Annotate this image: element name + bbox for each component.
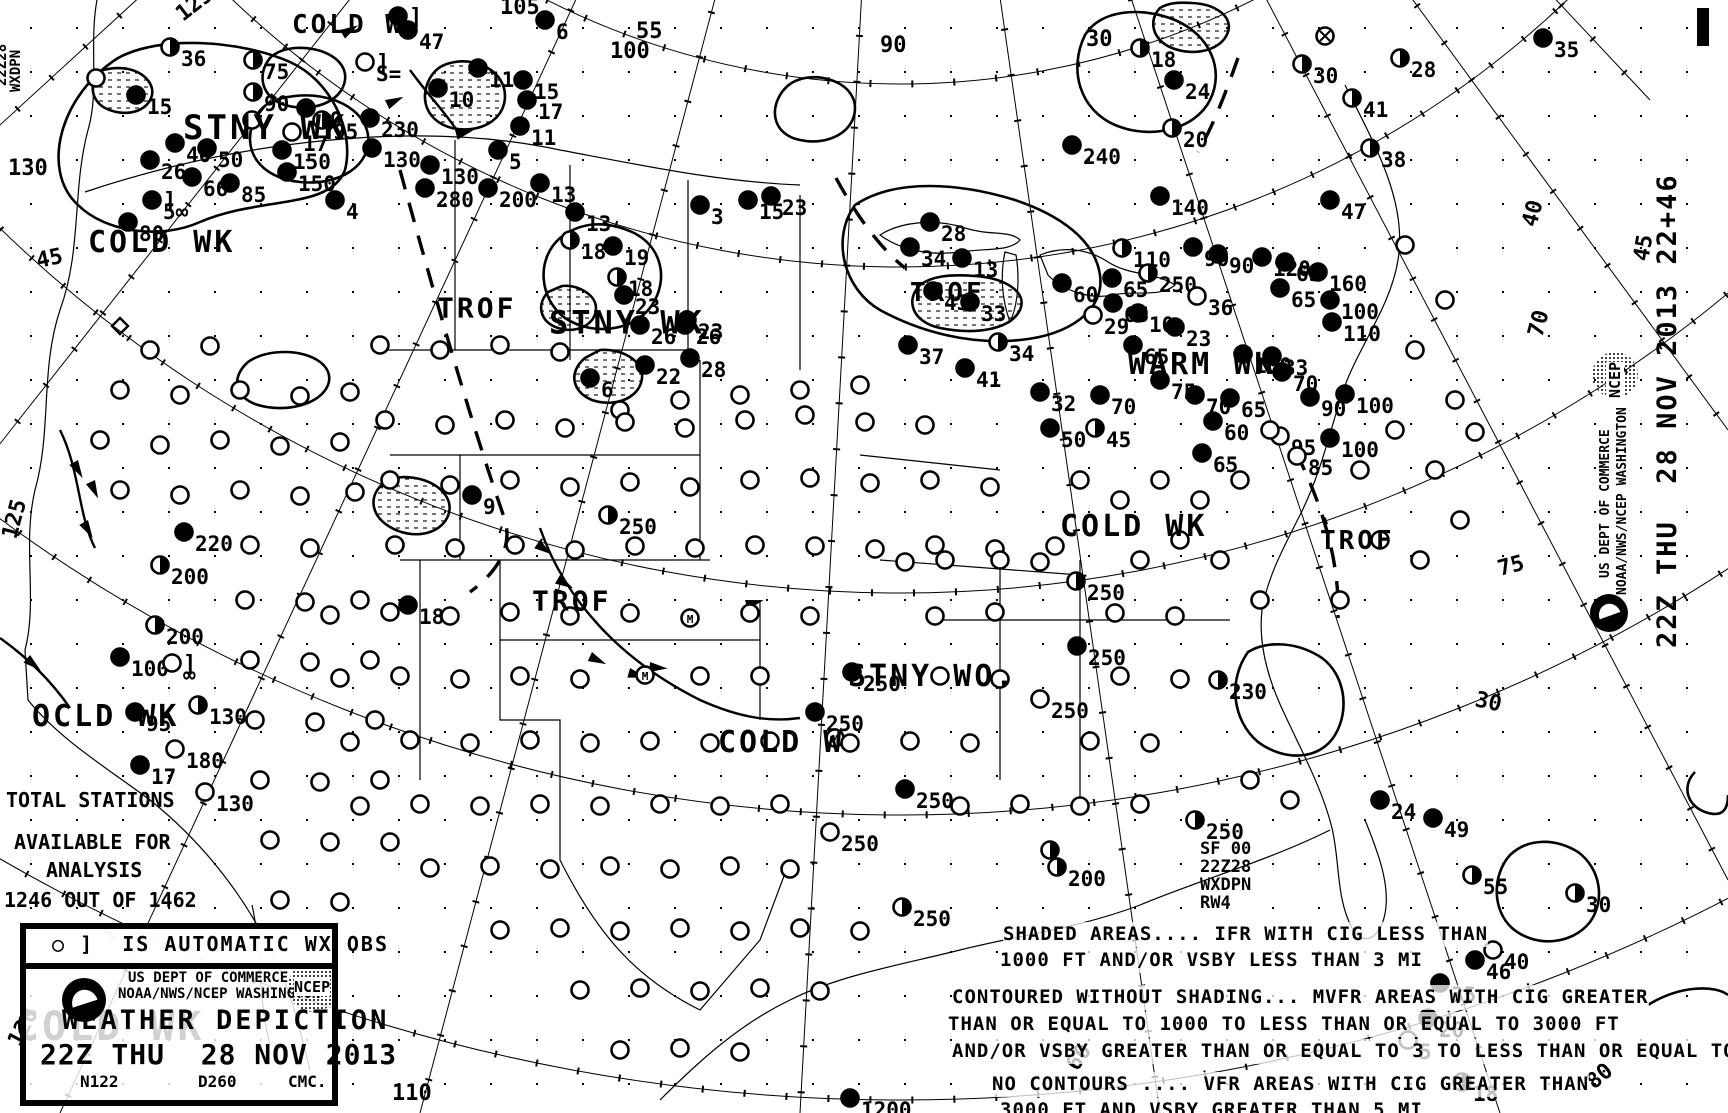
field-station [1332, 592, 1349, 609]
station-plot: 17 [132, 757, 177, 790]
front-pip [588, 652, 609, 669]
field-station [497, 412, 514, 429]
field-station [242, 652, 259, 669]
field-station [432, 342, 449, 359]
field-station [592, 798, 609, 815]
station-value: 130 [441, 165, 479, 189]
field-station [332, 434, 349, 451]
station-value: 45 [1106, 428, 1131, 452]
field-station [652, 796, 669, 813]
field-station [812, 983, 829, 1000]
grid-label: 130 [8, 156, 48, 181]
station-value: 66 [203, 177, 228, 201]
station-plot: ]S= [357, 51, 402, 86]
field-station [722, 858, 739, 875]
field-station [627, 538, 644, 555]
station-value: 5 [509, 150, 522, 174]
station-value: 34 [921, 247, 946, 271]
field-station [437, 417, 454, 434]
field-station [712, 798, 729, 815]
station-value: 26 [161, 160, 186, 184]
station-value: 38 [1381, 148, 1406, 172]
field-station [112, 382, 129, 399]
station-value: 240 [1083, 145, 1121, 169]
field-station [342, 734, 359, 751]
field-station [1082, 733, 1099, 750]
station-value: 32 [1051, 392, 1076, 416]
station-plot: 60 [1054, 275, 1099, 308]
front-pip [385, 92, 406, 109]
station-value: 65 [1296, 262, 1321, 286]
field-station [1112, 668, 1129, 685]
field-station [662, 861, 679, 878]
field-station [672, 920, 689, 937]
station-value: 4 [346, 200, 359, 224]
region-label: TROF [437, 291, 516, 324]
field-station [532, 796, 549, 813]
station-value: 6 [601, 378, 614, 402]
legend-vfr-2: 3000 FT AND VSBY GREATER THAN 5 MI [1000, 1098, 1423, 1113]
station-plot: 100 [112, 649, 169, 682]
field-station [382, 472, 399, 489]
field-station [782, 861, 799, 878]
station-value: 220 [195, 532, 233, 556]
station-value: 17 [538, 100, 563, 124]
corner-mark [1697, 8, 1709, 46]
field-station [1072, 798, 1089, 815]
field-station [367, 712, 384, 729]
station-plot: 18 [562, 232, 607, 265]
side-datetime-stamp: 22Z THU 28 NOV 2013 22+46 [1652, 173, 1683, 648]
field-station [792, 920, 809, 937]
station-plot: 200 [147, 617, 204, 650]
station-value: 37 [919, 345, 944, 369]
station-value: 85 [241, 183, 266, 207]
field-station [1152, 472, 1169, 489]
station-value: 100 [1356, 394, 1394, 418]
side-agency-2: NOAA/NWS/NCEP WASHINGTON [1615, 407, 1630, 595]
field-station [247, 712, 264, 729]
field-station [292, 488, 309, 505]
field-station [962, 735, 979, 752]
field-station [897, 554, 914, 571]
station-value: 250 [1051, 699, 1089, 723]
region-label: COLD W [292, 10, 404, 40]
station-plot: 140 [1152, 188, 1209, 221]
field-station [322, 834, 339, 851]
field-station [952, 798, 969, 815]
field-station [492, 922, 509, 939]
field-station [502, 604, 519, 621]
field-station [772, 796, 789, 813]
station-value: 250 [1087, 581, 1125, 605]
field-station [927, 537, 944, 554]
station-value: 90 [1229, 254, 1254, 278]
field-station [672, 1040, 689, 1057]
field-station [1012, 796, 1029, 813]
field-station [347, 484, 364, 501]
grid-label: 125 [171, 0, 218, 27]
station-value: 33 [981, 302, 1006, 326]
station-value: 24 [1391, 800, 1416, 824]
station-plot: 66 [184, 169, 229, 202]
field-station [292, 388, 309, 405]
field-station [672, 392, 689, 409]
station-plot: ]∞ [164, 652, 197, 687]
field-station [452, 671, 469, 688]
field-station [1212, 552, 1229, 569]
field-station [142, 342, 159, 359]
field-station [1167, 608, 1184, 625]
svg-text:M: M [687, 613, 694, 626]
field-station [232, 382, 249, 399]
grid-label: 75 [1495, 551, 1527, 582]
field-station [742, 472, 759, 489]
station-plot: M [637, 667, 654, 684]
grid-label: 110 [392, 1081, 432, 1106]
station-plot: 41 [957, 360, 1002, 393]
field-station [1397, 237, 1414, 254]
field-station [852, 377, 869, 394]
legend-shaded-2: 1000 FT AND/OR VSBY LESS THAN 3 MI [1000, 948, 1423, 973]
grid-label: 45 [34, 244, 65, 274]
field-station [622, 605, 639, 622]
stamp-l1: SF 00 [1200, 839, 1251, 859]
field-station [322, 607, 339, 624]
field-station [332, 894, 349, 911]
grid-label: 70 [1524, 307, 1555, 339]
station-plot: 19 [605, 238, 650, 271]
station-plot: 250 [1069, 638, 1126, 671]
field-station [982, 479, 999, 496]
field-station [682, 479, 699, 496]
field-station [202, 338, 219, 355]
legend-shaded-1: SHADED AREAS.... IFR WITH CIG LESS THAN [1003, 922, 1488, 947]
field-station [612, 1042, 629, 1059]
field-station [272, 438, 289, 455]
field-station [922, 472, 939, 489]
front-pip [79, 520, 97, 541]
field-station [937, 552, 954, 569]
station-plot: 28 [682, 350, 727, 383]
station-value: 24 [1185, 80, 1210, 104]
field-station [1427, 462, 1444, 479]
legend-mvfr-3: AND/OR VSBY GREATER THAN OR EQUAL TO 3 T… [952, 1039, 1728, 1064]
station-value: 250 [841, 832, 879, 856]
field-station [612, 923, 629, 940]
station-value: 50 [1061, 428, 1086, 452]
field-station [732, 1044, 749, 1061]
station-plot: 35 [1535, 30, 1580, 63]
product-stamp: SF 0022Z28WXDPNRW4 [1200, 840, 1251, 912]
field-station [1032, 554, 1049, 571]
field-station [562, 479, 579, 496]
field-station [442, 608, 459, 625]
station-value: 55 [1483, 875, 1508, 899]
region-label: COLD W [718, 725, 844, 760]
station-value: 17 [151, 765, 176, 789]
station-plot: 49 [1425, 810, 1470, 843]
field-station [212, 432, 229, 449]
station-plot: 4 [327, 192, 359, 225]
station-value: 47 [419, 30, 444, 54]
station-plot: 34 [902, 239, 947, 272]
product-datetime: 22Z THU 28 NOV 2013 [40, 1038, 397, 1071]
field-station [752, 980, 769, 997]
station-value: 200 [166, 625, 204, 649]
station-plot: 55 [1464, 867, 1509, 900]
station-value: 40 [1504, 950, 1529, 974]
field-station [557, 420, 574, 437]
product-title: WEATHER DEPICTION [62, 1005, 389, 1036]
field-station [797, 407, 814, 424]
field-station [572, 671, 589, 688]
field-station [617, 414, 634, 431]
station-plot: 200 [152, 557, 209, 590]
station-plot: 1200 [842, 1090, 912, 1113]
field-station [702, 735, 719, 752]
field-station [642, 733, 659, 750]
field-station [402, 732, 419, 749]
field-station [1387, 422, 1404, 439]
field-station [792, 382, 809, 399]
station-value: 110 [1343, 322, 1381, 346]
field-station [1437, 292, 1454, 309]
station-value: 18 [1151, 48, 1176, 72]
field-station [1352, 462, 1369, 479]
station-value: 19 [624, 246, 649, 270]
station-plot: 130 [364, 140, 421, 173]
station-value: 28 [701, 358, 726, 382]
field-station [342, 384, 359, 401]
field-station [172, 487, 189, 504]
station-plot: 47 [1322, 192, 1367, 225]
field-station [352, 798, 369, 815]
station-value: 11 [531, 126, 556, 150]
product-id-1: N122 [80, 1072, 119, 1091]
station-plot: 24 [1166, 72, 1211, 105]
station-value: 36 [1208, 296, 1233, 320]
station-value: 130 [209, 705, 247, 729]
station-plot: 250 [600, 507, 657, 540]
station-value: 9 [483, 495, 496, 519]
field-station [1447, 392, 1464, 409]
field-station [1142, 735, 1159, 752]
station-plot: 50 [1042, 420, 1087, 453]
station-value: 20 [1183, 128, 1208, 152]
obs-box-label: ○ ] IS AUTOMATIC WX OBS [52, 932, 389, 956]
station-plot: 250 [894, 899, 951, 932]
station-value: 1200 [861, 1098, 912, 1113]
region-label: TROF [910, 278, 985, 308]
station-plot: 30 [1567, 885, 1612, 918]
region-label: COLD WK [88, 225, 235, 260]
station-plot: 9 [464, 487, 496, 520]
station-plot: 28 [922, 214, 967, 247]
field-station [867, 541, 884, 558]
field-station [862, 475, 879, 492]
station-plot: 36 [1189, 288, 1234, 321]
station-value: 200 [1068, 867, 1106, 891]
station-plot: 38 [1362, 140, 1407, 173]
field-station [1252, 592, 1269, 609]
field-station [752, 668, 769, 685]
station-plot: 220 [176, 524, 233, 557]
field-station [92, 432, 109, 449]
station-value: 50 [218, 148, 243, 172]
station-value: 35 [1554, 38, 1579, 62]
field-station [692, 983, 709, 1000]
field-station [992, 552, 1009, 569]
station-value: 49 [1444, 818, 1469, 842]
grid-label: 40 [1518, 197, 1549, 229]
station-value: 130 [216, 792, 254, 816]
front-pip [86, 480, 103, 501]
field-station [482, 858, 499, 875]
field-station [302, 540, 319, 557]
station-plot: 24 [1372, 792, 1417, 825]
station-plot: 3 [692, 197, 724, 230]
grid-label: 125 [0, 497, 32, 542]
station-value: 230 [381, 118, 419, 142]
legend-vfr-1: NO CONTOURS .... VFR AREAS WITH CIG GREA… [992, 1072, 1589, 1097]
station-value: 85 [1308, 456, 1333, 480]
station-value: 5∞ [163, 200, 189, 224]
station-value: 13 [586, 212, 611, 236]
station-value: 23 [782, 196, 807, 220]
station-plot: 250 [822, 824, 879, 857]
side-agency-1: US DEPT OF COMMERCE [1598, 429, 1613, 578]
station-value: 75 [264, 60, 289, 84]
field-station [1107, 605, 1124, 622]
station-plot: 200 [1049, 859, 1106, 892]
stats-line-2: AVAILABLE FOR [14, 830, 171, 854]
station-value: 47 [1341, 200, 1366, 224]
station-value: 34 [1009, 342, 1034, 366]
field-station [857, 414, 874, 431]
region-label: STNY WK [183, 108, 347, 148]
field-station [582, 735, 599, 752]
region-label: OCLD WK [32, 699, 179, 734]
field-station [732, 923, 749, 940]
field-station [502, 472, 519, 489]
grid-label: 105 [500, 0, 540, 20]
field-station [422, 860, 439, 877]
station-value: 3 [711, 205, 724, 229]
side-ncep-text: NCEP [1606, 362, 1624, 398]
field-station [1172, 671, 1189, 688]
station-value: 41 [1363, 98, 1388, 122]
station-plot: 26 [142, 152, 187, 185]
field-station [1242, 772, 1259, 789]
field-station [112, 482, 129, 499]
field-station [1467, 424, 1484, 441]
station-plot: 65 [1194, 445, 1239, 478]
field-station [1232, 472, 1249, 489]
field-station [382, 604, 399, 621]
field-station [522, 732, 539, 749]
stats-line-4: 1246 OUT OF 1462 [4, 888, 197, 912]
field-station [377, 412, 394, 429]
station-plot: 29 [1085, 307, 1130, 340]
field-station [927, 608, 944, 625]
field-station [512, 668, 529, 685]
station-plot: 28 [1392, 50, 1437, 83]
station-value: 28 [941, 222, 966, 246]
grid-label: 100 [610, 39, 650, 64]
field-station [1412, 552, 1429, 569]
station-plot: 70 [1092, 387, 1137, 420]
station-value: 60 [1073, 283, 1098, 307]
station-value: 29 [1104, 315, 1129, 339]
field-station [242, 537, 259, 554]
field-station [352, 592, 369, 609]
field-station [902, 733, 919, 750]
station-value: 100 [1341, 438, 1379, 462]
field-station [1262, 422, 1279, 439]
product-id-2: D260 [198, 1072, 237, 1091]
station-value: 250 [913, 907, 951, 931]
field-station [542, 861, 559, 878]
station-value: 22 [656, 365, 681, 389]
stamp-l3: WXDPN [1200, 875, 1251, 895]
field-station [302, 654, 319, 671]
station-plot: 6 [537, 12, 569, 45]
field-station [472, 798, 489, 815]
station-value: 230 [1229, 680, 1267, 704]
field-station [747, 537, 764, 554]
field-station [492, 337, 509, 354]
field-station [152, 437, 169, 454]
field-station [1072, 472, 1089, 489]
station-value: 11 [489, 68, 514, 92]
region-label: COLD WK [1060, 509, 1207, 544]
station-value: 18 [581, 240, 606, 264]
station-value: 15 [147, 95, 172, 119]
grid-label: 30 [1473, 687, 1504, 717]
region-label: WARM WK [1128, 347, 1275, 382]
field-station [552, 920, 569, 937]
station-plot: 18 [400, 597, 445, 630]
field-station [572, 982, 589, 999]
station-value: 65 [1291, 288, 1316, 312]
station-plot: 250 [897, 781, 954, 814]
station-value: 36 [181, 47, 206, 71]
region-label: STNY WO. [848, 659, 1017, 694]
field-station [1192, 492, 1209, 509]
field-station [632, 980, 649, 997]
field-station [802, 608, 819, 625]
field-station [442, 477, 459, 494]
region-label: TROF [532, 584, 611, 617]
field-station [88, 70, 105, 87]
field-station [622, 474, 639, 491]
station-value: 30 [1586, 893, 1611, 917]
station-value: 18 [628, 277, 653, 301]
region-label: STNY WK [549, 304, 705, 342]
station-value: 200 [171, 565, 209, 589]
station-value: S= [376, 62, 401, 86]
field-station [392, 668, 409, 685]
field-station [297, 594, 314, 611]
field-station [1282, 792, 1299, 809]
station-value: 70 [1111, 395, 1136, 419]
field-station [567, 542, 584, 559]
field-station [552, 344, 569, 361]
station-plot: 75 [245, 52, 290, 85]
field-station [272, 892, 289, 909]
station-value: 180 [186, 749, 224, 773]
